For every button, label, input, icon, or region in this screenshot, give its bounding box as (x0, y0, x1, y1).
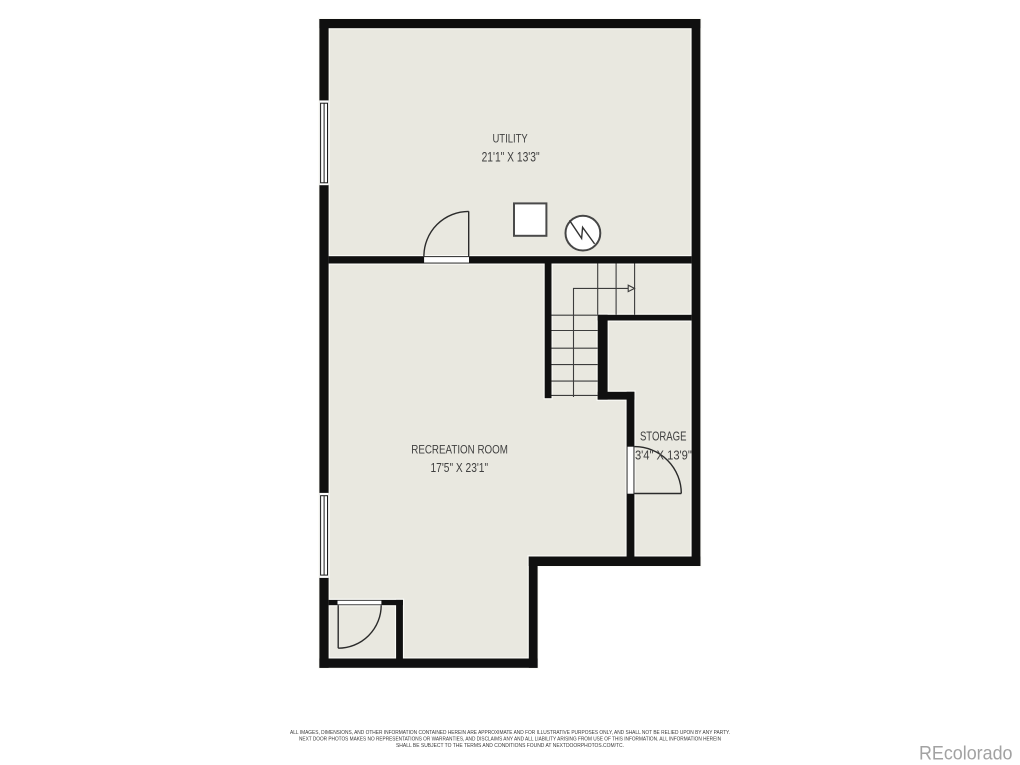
svg-text:NEXT DOOR PHOTOS MAKES NO REPR: NEXT DOOR PHOTOS MAKES NO REPRESENTATION… (299, 736, 721, 742)
svg-text:REcolorado: REcolorado (919, 743, 1013, 765)
svg-text:3'4" X 13'9": 3'4" X 13'9" (635, 448, 692, 463)
svg-text:SHALL BE SUBJECT TO THE TERMS: SHALL BE SUBJECT TO THE TERMS AND CONDIT… (396, 743, 624, 749)
svg-text:UTILITY: UTILITY (492, 131, 527, 145)
svg-text:ALL IMAGES, DIMENSIONS, AND OT: ALL IMAGES, DIMENSIONS, AND OTHER INFORM… (290, 730, 730, 736)
svg-text:RECREATION ROOM: RECREATION ROOM (411, 442, 508, 456)
svg-text:21'1" X 13'3": 21'1" X 13'3" (482, 149, 540, 165)
svg-text:STORAGE: STORAGE (640, 429, 687, 443)
svg-text:17'5" X 23'1": 17'5" X 23'1" (431, 460, 489, 475)
